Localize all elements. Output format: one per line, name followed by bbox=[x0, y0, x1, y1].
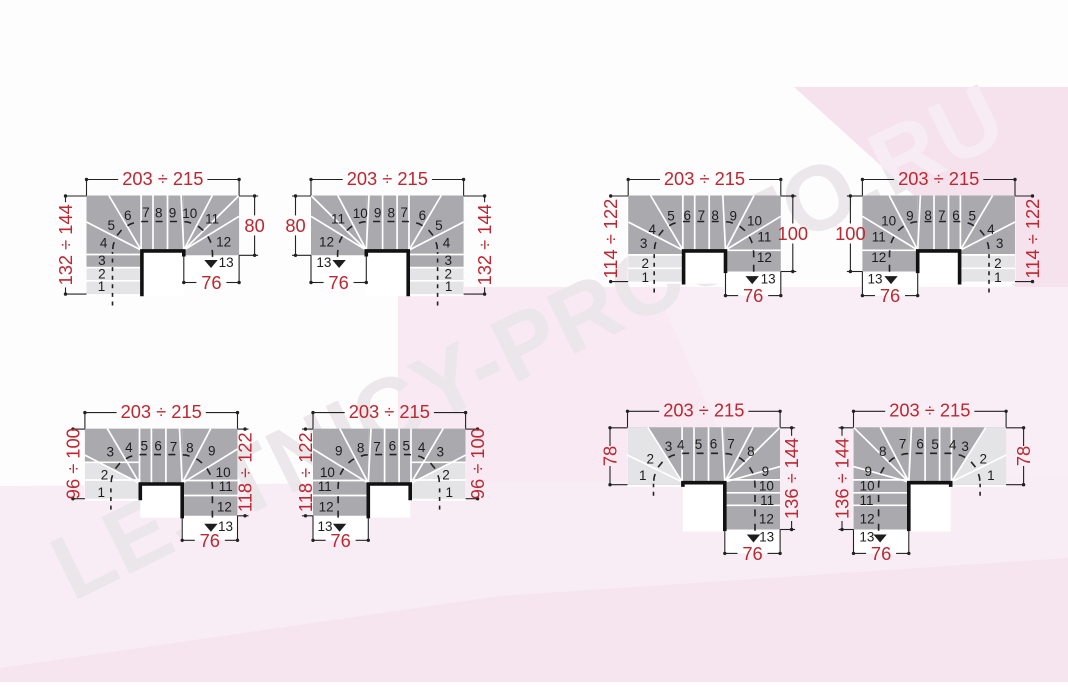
svg-text:5: 5 bbox=[931, 437, 939, 452]
svg-text:78: 78 bbox=[600, 446, 621, 466]
svg-text:12: 12 bbox=[319, 499, 334, 514]
svg-text:2: 2 bbox=[101, 467, 109, 482]
svg-text:6: 6 bbox=[124, 208, 132, 223]
svg-text:118 ÷ 122: 118 ÷ 122 bbox=[295, 432, 316, 512]
svg-text:11: 11 bbox=[757, 230, 771, 245]
svg-text:9: 9 bbox=[208, 444, 216, 459]
svg-text:203 ÷ 215: 203 ÷ 215 bbox=[349, 401, 430, 422]
svg-text:4: 4 bbox=[949, 438, 957, 453]
svg-text:11: 11 bbox=[318, 479, 332, 494]
svg-text:3: 3 bbox=[436, 445, 444, 460]
svg-text:203 ÷ 215: 203 ÷ 215 bbox=[889, 400, 970, 421]
svg-text:203 ÷ 215: 203 ÷ 215 bbox=[898, 168, 979, 189]
svg-text:3: 3 bbox=[640, 236, 648, 251]
svg-text:6: 6 bbox=[710, 437, 718, 452]
svg-text:7: 7 bbox=[142, 205, 150, 220]
svg-text:11: 11 bbox=[872, 230, 886, 245]
svg-text:11: 11 bbox=[859, 493, 873, 508]
svg-text:6: 6 bbox=[389, 438, 397, 453]
svg-text:9: 9 bbox=[730, 209, 738, 224]
svg-text:5: 5 bbox=[141, 438, 149, 453]
svg-text:1: 1 bbox=[994, 270, 1002, 285]
svg-text:2: 2 bbox=[980, 452, 988, 467]
svg-text:5: 5 bbox=[107, 218, 115, 233]
svg-text:5: 5 bbox=[695, 437, 703, 452]
svg-text:3: 3 bbox=[98, 253, 106, 268]
svg-text:80: 80 bbox=[285, 215, 305, 236]
svg-text:78: 78 bbox=[1013, 446, 1034, 466]
svg-text:8: 8 bbox=[879, 444, 887, 459]
svg-text:2: 2 bbox=[98, 267, 106, 282]
svg-text:2: 2 bbox=[994, 256, 1002, 271]
svg-text:5: 5 bbox=[402, 438, 410, 453]
svg-text:76: 76 bbox=[871, 543, 891, 564]
svg-text:12: 12 bbox=[216, 234, 231, 249]
svg-text:8: 8 bbox=[186, 441, 194, 456]
svg-text:4: 4 bbox=[418, 440, 426, 455]
svg-text:6: 6 bbox=[952, 208, 960, 223]
svg-text:203 ÷ 215: 203 ÷ 215 bbox=[664, 168, 745, 189]
svg-text:80: 80 bbox=[244, 215, 264, 236]
svg-text:11: 11 bbox=[760, 493, 774, 508]
svg-text:203 ÷ 215: 203 ÷ 215 bbox=[663, 400, 744, 421]
svg-text:1: 1 bbox=[98, 485, 106, 500]
svg-text:5: 5 bbox=[435, 218, 443, 233]
svg-text:1: 1 bbox=[987, 468, 995, 483]
svg-text:9: 9 bbox=[864, 464, 872, 479]
svg-text:132 ÷ 144: 132 ÷ 144 bbox=[55, 204, 76, 285]
svg-text:8: 8 bbox=[388, 205, 396, 220]
svg-text:2: 2 bbox=[444, 267, 452, 282]
svg-text:4: 4 bbox=[677, 438, 685, 453]
svg-text:5: 5 bbox=[667, 209, 675, 224]
svg-text:10: 10 bbox=[860, 478, 875, 493]
svg-text:2: 2 bbox=[442, 467, 450, 482]
svg-text:8: 8 bbox=[924, 208, 932, 223]
svg-text:12: 12 bbox=[759, 512, 774, 527]
svg-text:13: 13 bbox=[316, 255, 331, 270]
svg-text:8: 8 bbox=[747, 444, 755, 459]
svg-text:12: 12 bbox=[319, 234, 334, 249]
svg-text:13: 13 bbox=[218, 519, 233, 534]
svg-text:96 ÷ 100: 96 ÷ 100 bbox=[62, 428, 83, 499]
svg-text:1: 1 bbox=[445, 485, 453, 500]
svg-text:12: 12 bbox=[757, 250, 772, 265]
svg-text:76: 76 bbox=[330, 530, 350, 551]
svg-text:6: 6 bbox=[916, 437, 924, 452]
svg-text:2: 2 bbox=[642, 256, 650, 271]
svg-text:7: 7 bbox=[899, 437, 907, 452]
svg-text:7: 7 bbox=[698, 208, 706, 223]
svg-text:9: 9 bbox=[374, 205, 382, 220]
svg-text:114 ÷ 122: 114 ÷ 122 bbox=[1022, 199, 1043, 279]
svg-text:132 ÷ 144: 132 ÷ 144 bbox=[474, 204, 495, 285]
svg-text:3: 3 bbox=[961, 439, 969, 454]
svg-text:3: 3 bbox=[444, 253, 452, 268]
svg-text:203 ÷ 215: 203 ÷ 215 bbox=[347, 168, 428, 189]
svg-text:7: 7 bbox=[727, 437, 735, 452]
svg-text:136 ÷ 144: 136 ÷ 144 bbox=[781, 438, 802, 519]
svg-text:1: 1 bbox=[639, 468, 647, 483]
svg-text:8: 8 bbox=[155, 205, 163, 220]
svg-text:7: 7 bbox=[400, 205, 408, 220]
svg-text:100: 100 bbox=[835, 223, 866, 244]
svg-text:1: 1 bbox=[642, 270, 650, 285]
svg-text:2: 2 bbox=[647, 452, 655, 467]
svg-text:6: 6 bbox=[419, 208, 427, 223]
svg-text:100: 100 bbox=[778, 223, 809, 244]
svg-text:8: 8 bbox=[711, 208, 719, 223]
svg-text:10: 10 bbox=[216, 465, 231, 480]
svg-text:203 ÷ 215: 203 ÷ 215 bbox=[121, 401, 202, 422]
svg-text:10: 10 bbox=[759, 478, 774, 493]
svg-text:11: 11 bbox=[331, 212, 345, 227]
svg-text:3: 3 bbox=[996, 236, 1004, 251]
svg-text:11: 11 bbox=[219, 479, 233, 494]
svg-text:9: 9 bbox=[906, 209, 914, 224]
svg-text:76: 76 bbox=[880, 285, 900, 306]
svg-text:10: 10 bbox=[747, 214, 762, 229]
svg-text:3: 3 bbox=[665, 439, 673, 454]
svg-text:76: 76 bbox=[200, 530, 220, 551]
svg-text:10: 10 bbox=[182, 206, 197, 221]
svg-text:4: 4 bbox=[987, 222, 995, 237]
svg-text:136 ÷ 144: 136 ÷ 144 bbox=[832, 438, 853, 519]
svg-text:12: 12 bbox=[860, 512, 875, 527]
svg-text:203 ÷ 215: 203 ÷ 215 bbox=[122, 168, 203, 189]
svg-text:4: 4 bbox=[443, 236, 451, 251]
svg-text:4: 4 bbox=[100, 236, 108, 251]
svg-text:10: 10 bbox=[353, 206, 368, 221]
svg-text:9: 9 bbox=[762, 464, 770, 479]
svg-text:8: 8 bbox=[357, 441, 365, 456]
svg-text:7: 7 bbox=[373, 439, 381, 454]
svg-text:4: 4 bbox=[649, 222, 657, 237]
svg-text:114 ÷ 122: 114 ÷ 122 bbox=[600, 199, 621, 279]
svg-text:76: 76 bbox=[743, 285, 763, 306]
svg-text:13: 13 bbox=[219, 255, 234, 270]
svg-text:12: 12 bbox=[217, 499, 232, 514]
svg-text:11: 11 bbox=[205, 212, 219, 227]
svg-text:10: 10 bbox=[320, 465, 335, 480]
svg-text:76: 76 bbox=[742, 543, 762, 564]
svg-text:4: 4 bbox=[125, 440, 133, 455]
svg-text:9: 9 bbox=[335, 444, 343, 459]
svg-text:7: 7 bbox=[938, 208, 946, 223]
svg-text:5: 5 bbox=[968, 209, 976, 224]
svg-text:3: 3 bbox=[107, 445, 115, 460]
svg-text:12: 12 bbox=[871, 250, 886, 265]
svg-text:76: 76 bbox=[328, 272, 348, 293]
svg-text:9: 9 bbox=[169, 205, 177, 220]
svg-text:7: 7 bbox=[170, 439, 178, 454]
svg-text:96 ÷ 100: 96 ÷ 100 bbox=[467, 428, 488, 499]
svg-text:6: 6 bbox=[683, 208, 691, 223]
svg-text:10: 10 bbox=[881, 214, 896, 229]
svg-text:6: 6 bbox=[154, 438, 162, 453]
svg-text:118 ÷ 122: 118 ÷ 122 bbox=[235, 432, 256, 512]
svg-text:76: 76 bbox=[201, 272, 221, 293]
